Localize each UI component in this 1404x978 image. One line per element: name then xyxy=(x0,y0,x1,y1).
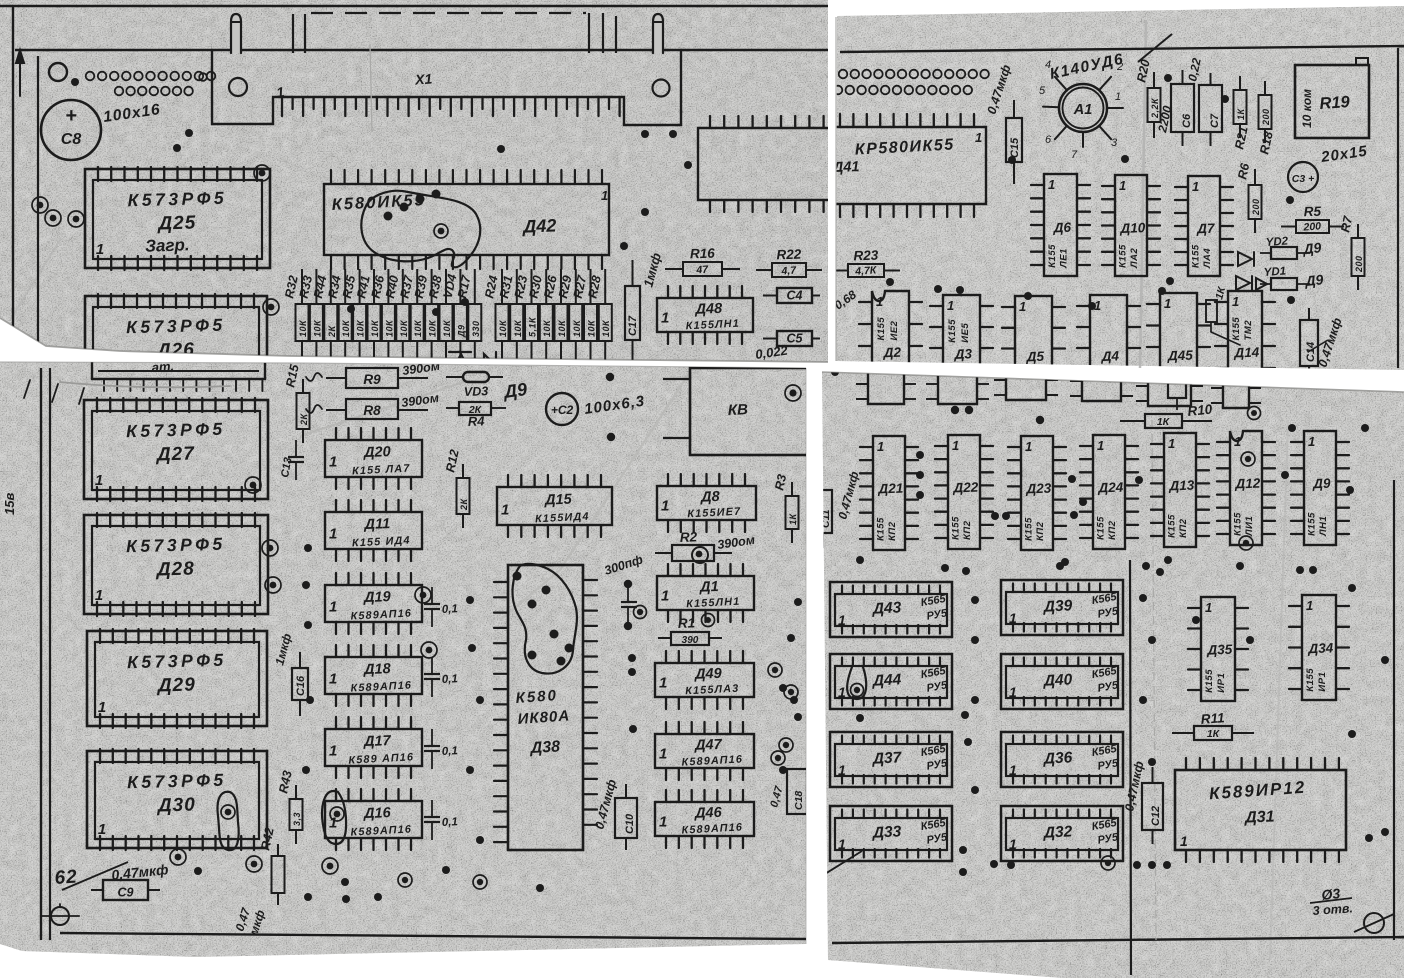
svg-text:1: 1 xyxy=(329,599,337,616)
svg-text:1: 1 xyxy=(838,836,846,852)
svg-text:Д27: Д27 xyxy=(155,443,196,465)
svg-text:R23: R23 xyxy=(853,248,879,264)
svg-text:К155: К155 xyxy=(1233,512,1244,536)
svg-text:200: 200 xyxy=(1261,108,1271,126)
svg-text:Д16: Д16 xyxy=(362,805,392,822)
svg-text:VD3: VD3 xyxy=(464,384,489,399)
svg-text:К155: К155 xyxy=(947,319,958,343)
svg-text:1: 1 xyxy=(501,501,509,518)
svg-text:1: 1 xyxy=(96,241,104,258)
svg-text:1: 1 xyxy=(1164,296,1171,311)
svg-text:R19: R19 xyxy=(1319,93,1351,113)
svg-text:К573РФ5: К573РФ5 xyxy=(126,419,226,442)
svg-text:К155: К155 xyxy=(951,516,962,540)
svg-text:К155: К155 xyxy=(1167,514,1178,538)
svg-text:С6: С6 xyxy=(1181,113,1193,128)
svg-text:2К: 2К xyxy=(459,497,469,511)
svg-text:К573РФ5: К573РФ5 xyxy=(126,534,226,557)
svg-text:R8: R8 xyxy=(363,403,381,418)
svg-text:10К: 10К xyxy=(384,319,394,337)
svg-text:Д49: Д49 xyxy=(693,666,722,683)
svg-text:К573РФ5: К573РФ5 xyxy=(127,770,227,793)
svg-text:ЛА4: ЛА4 xyxy=(1202,248,1213,269)
svg-text:Д23: Д23 xyxy=(1025,481,1052,497)
svg-text:С15: С15 xyxy=(1009,137,1021,158)
svg-text:10К: 10К xyxy=(542,319,552,337)
svg-text:К580: К580 xyxy=(515,687,558,707)
svg-text:10 ком: 10 ком xyxy=(1300,89,1314,128)
svg-text:ИР1: ИР1 xyxy=(1216,673,1227,693)
svg-text:С14: С14 xyxy=(1305,342,1317,362)
svg-text:К573РФ5: К573РФ5 xyxy=(127,650,227,673)
svg-text:1: 1 xyxy=(975,130,982,145)
svg-text:К155: К155 xyxy=(1191,244,1202,268)
svg-text:+С2: +С2 xyxy=(551,403,574,417)
svg-text:Загр.: Загр. xyxy=(145,235,190,256)
svg-text:1: 1 xyxy=(1009,610,1017,626)
svg-text:К155: К155 xyxy=(1047,244,1058,268)
svg-text:Д22: Д22 xyxy=(952,480,979,496)
svg-text:1: 1 xyxy=(329,743,337,760)
svg-text:R16: R16 xyxy=(690,246,716,262)
svg-text:Д9: Д9 xyxy=(1302,239,1323,257)
svg-text:1К: 1К xyxy=(1207,728,1221,740)
svg-text:1: 1 xyxy=(1009,684,1017,700)
svg-text:1: 1 xyxy=(1232,294,1239,309)
svg-text:1: 1 xyxy=(876,294,883,309)
svg-text:1: 1 xyxy=(659,675,667,692)
svg-text:С16: С16 xyxy=(295,675,307,696)
svg-text:Д18: Д18 xyxy=(362,661,392,678)
svg-text:А1: А1 xyxy=(1073,102,1093,118)
svg-text:15в: 15в xyxy=(2,493,17,515)
svg-text:10К: 10К xyxy=(513,319,523,337)
svg-text:R1: R1 xyxy=(678,615,696,631)
svg-text:Д2: Д2 xyxy=(882,345,901,361)
svg-text:К573РФ5: К573РФ5 xyxy=(126,315,226,338)
svg-text:Д7: Д7 xyxy=(1196,221,1216,237)
svg-text:К155: К155 xyxy=(876,517,887,541)
svg-text:YD1: YD1 xyxy=(1263,265,1286,279)
svg-text:7: 7 xyxy=(1071,149,1078,161)
svg-text:Д14: Д14 xyxy=(1233,345,1260,361)
svg-text:КП2: КП2 xyxy=(1107,520,1118,540)
svg-text:+: + xyxy=(65,105,77,127)
svg-text:10К: 10К xyxy=(557,319,567,337)
svg-text:Д37: Д37 xyxy=(870,749,903,768)
svg-text:1: 1 xyxy=(838,762,846,778)
svg-text:Д43: Д43 xyxy=(870,599,902,618)
svg-text:К155: К155 xyxy=(1305,668,1316,692)
svg-text:1: 1 xyxy=(1048,177,1055,192)
svg-text:1: 1 xyxy=(661,588,669,605)
svg-text:5,1К: 5,1К xyxy=(528,316,538,337)
svg-text:10К: 10К xyxy=(601,319,611,337)
svg-text:Д32: Д32 xyxy=(1041,823,1073,842)
svg-text:КП2: КП2 xyxy=(887,521,898,541)
svg-text:Д42: Д42 xyxy=(521,215,557,236)
svg-text:10К: 10К xyxy=(413,319,423,337)
svg-text:Д31: Д31 xyxy=(1243,808,1275,826)
svg-text:С10: С10 xyxy=(624,813,636,834)
svg-text:1: 1 xyxy=(98,699,106,716)
svg-text:КП2: КП2 xyxy=(1035,521,1046,541)
svg-text:Д9: Д9 xyxy=(1304,271,1325,289)
svg-text:Д29: Д29 xyxy=(156,675,196,697)
svg-text:5: 5 xyxy=(1039,85,1046,97)
svg-text:200: 200 xyxy=(1251,198,1261,216)
svg-text:Д21: Д21 xyxy=(877,481,903,497)
svg-text:К573РФ5: К573РФ5 xyxy=(127,188,227,211)
svg-text:1: 1 xyxy=(659,814,667,831)
svg-text:390: 390 xyxy=(682,635,699,646)
svg-text:К155: К155 xyxy=(1204,669,1215,693)
svg-text:Д40: Д40 xyxy=(1041,671,1073,690)
svg-text:330: 330 xyxy=(471,320,481,337)
svg-text:R22: R22 xyxy=(776,247,802,263)
svg-text:R2: R2 xyxy=(680,529,698,545)
svg-text:ЛА2: ЛА2 xyxy=(1129,248,1140,269)
svg-text:К155: К155 xyxy=(1307,512,1318,536)
svg-text:200: 200 xyxy=(1302,220,1321,233)
svg-text:1: 1 xyxy=(838,612,846,628)
svg-text:К155: К155 xyxy=(1118,244,1129,268)
svg-text:Д9: Д9 xyxy=(456,324,466,338)
svg-text:Д5: Д5 xyxy=(1025,349,1044,365)
svg-text:3,3: 3,3 xyxy=(292,812,302,826)
svg-text:1: 1 xyxy=(659,746,667,763)
svg-text:6: 6 xyxy=(1045,134,1052,146)
svg-text:Д28: Д28 xyxy=(155,559,195,581)
svg-text:1: 1 xyxy=(947,298,954,313)
svg-text:Д12: Д12 xyxy=(1234,476,1261,492)
svg-text:1: 1 xyxy=(1192,179,1199,194)
svg-text:Д8: Д8 xyxy=(699,489,721,506)
svg-text:1: 1 xyxy=(1097,438,1104,453)
svg-text:С4: С4 xyxy=(787,289,803,303)
svg-text:1: 1 xyxy=(1308,434,1315,449)
svg-text:К155: К155 xyxy=(1231,317,1242,341)
svg-text:1: 1 xyxy=(95,587,103,604)
svg-text:ИР1: ИР1 xyxy=(1317,672,1328,692)
svg-text:С18: С18 xyxy=(793,791,805,810)
svg-text:Д19: Д19 xyxy=(362,589,391,606)
svg-text:10К: 10К xyxy=(587,319,597,337)
svg-text:1: 1 xyxy=(329,671,337,688)
svg-text:Д1: Д1 xyxy=(698,579,719,596)
svg-text:Д20: Д20 xyxy=(362,444,391,461)
svg-text:1: 1 xyxy=(877,439,884,454)
svg-text:1: 1 xyxy=(329,454,337,471)
svg-text:Д30: Д30 xyxy=(156,795,196,817)
svg-text:1К: 1К xyxy=(788,512,798,525)
svg-text:1: 1 xyxy=(1009,836,1017,852)
svg-text:10К: 10К xyxy=(442,319,452,337)
svg-text:1: 1 xyxy=(661,498,669,515)
svg-text:Д13: Д13 xyxy=(1168,478,1195,494)
svg-text:Д24: Д24 xyxy=(1097,480,1124,496)
svg-text:1: 1 xyxy=(1234,434,1241,449)
svg-text:4,7: 4,7 xyxy=(780,264,798,277)
svg-text:С7: С7 xyxy=(1209,113,1221,128)
svg-text:Д6: Д6 xyxy=(1052,220,1071,236)
svg-text:Д15: Д15 xyxy=(543,492,573,509)
svg-text:1К: 1К xyxy=(1157,416,1171,428)
svg-text:47: 47 xyxy=(695,264,710,277)
svg-text:1: 1 xyxy=(98,821,106,838)
svg-text:С3 +: С3 + xyxy=(1292,173,1314,185)
svg-text:10К: 10К xyxy=(370,319,380,337)
svg-text:ИЕ5: ИЕ5 xyxy=(960,323,971,343)
svg-text:R5: R5 xyxy=(1303,204,1321,220)
svg-text:К155: К155 xyxy=(1024,517,1035,541)
svg-text:2К: 2К xyxy=(299,412,309,426)
svg-text:Д46: Д46 xyxy=(693,805,723,822)
svg-text:10К: 10К xyxy=(298,319,308,337)
svg-text:3 отв.: 3 отв. xyxy=(1312,901,1353,918)
svg-text:0,1: 0,1 xyxy=(442,816,459,829)
svg-text:КВ: КВ xyxy=(728,401,749,419)
svg-text:Д11: Д11 xyxy=(362,516,390,533)
svg-text:10К: 10К xyxy=(428,319,438,337)
svg-text:1: 1 xyxy=(1119,178,1126,193)
svg-text:1: 1 xyxy=(1306,598,1313,613)
svg-text:ИЕ2: ИЕ2 xyxy=(889,320,900,340)
svg-text:Д9: Д9 xyxy=(1312,476,1331,492)
svg-text:1: 1 xyxy=(952,438,959,453)
svg-text:10К: 10К xyxy=(399,319,409,337)
svg-text:Д25: Д25 xyxy=(156,213,196,235)
svg-text:10К: 10К xyxy=(312,319,322,337)
svg-text:10К: 10К xyxy=(498,319,508,337)
svg-text:0,1: 0,1 xyxy=(442,603,459,616)
svg-text:Д9: Д9 xyxy=(501,379,529,402)
svg-text:10К: 10К xyxy=(341,319,351,337)
svg-text:ЛН1: ЛН1 xyxy=(1318,516,1329,537)
svg-text:1: 1 xyxy=(329,815,337,832)
svg-text:ТМ2: ТМ2 xyxy=(1243,320,1254,341)
svg-text:Д3: Д3 xyxy=(953,346,972,362)
svg-text:1: 1 xyxy=(1115,91,1121,103)
svg-text:Д38: Д38 xyxy=(528,738,560,757)
svg-text:1: 1 xyxy=(1009,762,1017,778)
svg-text:Д48: Д48 xyxy=(693,301,723,318)
svg-text:ЛЕ1: ЛЕ1 xyxy=(1058,248,1069,269)
svg-text:R9: R9 xyxy=(363,372,381,387)
svg-text:Д34: Д34 xyxy=(1307,640,1334,656)
svg-text:Д10: Д10 xyxy=(1119,220,1146,236)
svg-text:3: 3 xyxy=(1111,137,1118,149)
svg-text:1: 1 xyxy=(1205,600,1212,615)
svg-text:Д39: Д39 xyxy=(1041,597,1073,616)
svg-text:Д44: Д44 xyxy=(870,671,902,690)
svg-text:1: 1 xyxy=(329,526,337,543)
svg-text:КП2: КП2 xyxy=(1178,518,1189,538)
svg-text:1: 1 xyxy=(1019,299,1026,314)
svg-text:1: 1 xyxy=(661,310,669,327)
svg-text:1: 1 xyxy=(95,472,103,489)
svg-text:С17: С17 xyxy=(627,315,639,336)
svg-text:С9: С9 xyxy=(118,886,134,900)
svg-text:К155: К155 xyxy=(1096,516,1107,540)
svg-text:Х1: Х1 xyxy=(414,70,433,87)
svg-text:YD2: YD2 xyxy=(1265,235,1289,249)
svg-text:Д33: Д33 xyxy=(870,823,902,842)
svg-text:0,1: 0,1 xyxy=(442,745,459,758)
svg-text:10К: 10К xyxy=(356,319,366,337)
svg-text:1: 1 xyxy=(1025,439,1032,454)
svg-text:Д45: Д45 xyxy=(1167,348,1194,364)
svg-text:С5: С5 xyxy=(787,332,804,346)
svg-text:С8: С8 xyxy=(61,131,82,148)
svg-text:1: 1 xyxy=(838,684,846,700)
svg-text:К155: К155 xyxy=(876,317,887,341)
svg-text:1: 1 xyxy=(1180,833,1188,849)
svg-text:1К: 1К xyxy=(1236,107,1246,120)
svg-text:200: 200 xyxy=(1354,255,1364,273)
svg-text:Д47: Д47 xyxy=(693,737,723,754)
svg-text:10К: 10К xyxy=(572,319,582,337)
svg-text:Д17: Д17 xyxy=(362,733,392,750)
svg-text:Д36: Д36 xyxy=(1041,749,1073,768)
svg-text:R10: R10 xyxy=(1187,401,1214,419)
svg-text:Д4: Д4 xyxy=(1100,348,1119,364)
svg-text:4,7К: 4,7К xyxy=(854,264,878,278)
svg-text:Д35: Д35 xyxy=(1206,642,1233,658)
svg-text:КП2: КП2 xyxy=(962,520,973,540)
svg-text:0,1: 0,1 xyxy=(442,673,459,686)
svg-text:R11: R11 xyxy=(1200,710,1225,727)
svg-text:1: 1 xyxy=(1168,436,1175,451)
svg-text:ЛИ1: ЛИ1 xyxy=(1244,516,1255,537)
svg-text:1: 1 xyxy=(601,188,608,203)
svg-text:2К: 2К xyxy=(327,324,337,338)
svg-text:С12: С12 xyxy=(1150,806,1162,826)
svg-text:R4: R4 xyxy=(468,413,486,429)
